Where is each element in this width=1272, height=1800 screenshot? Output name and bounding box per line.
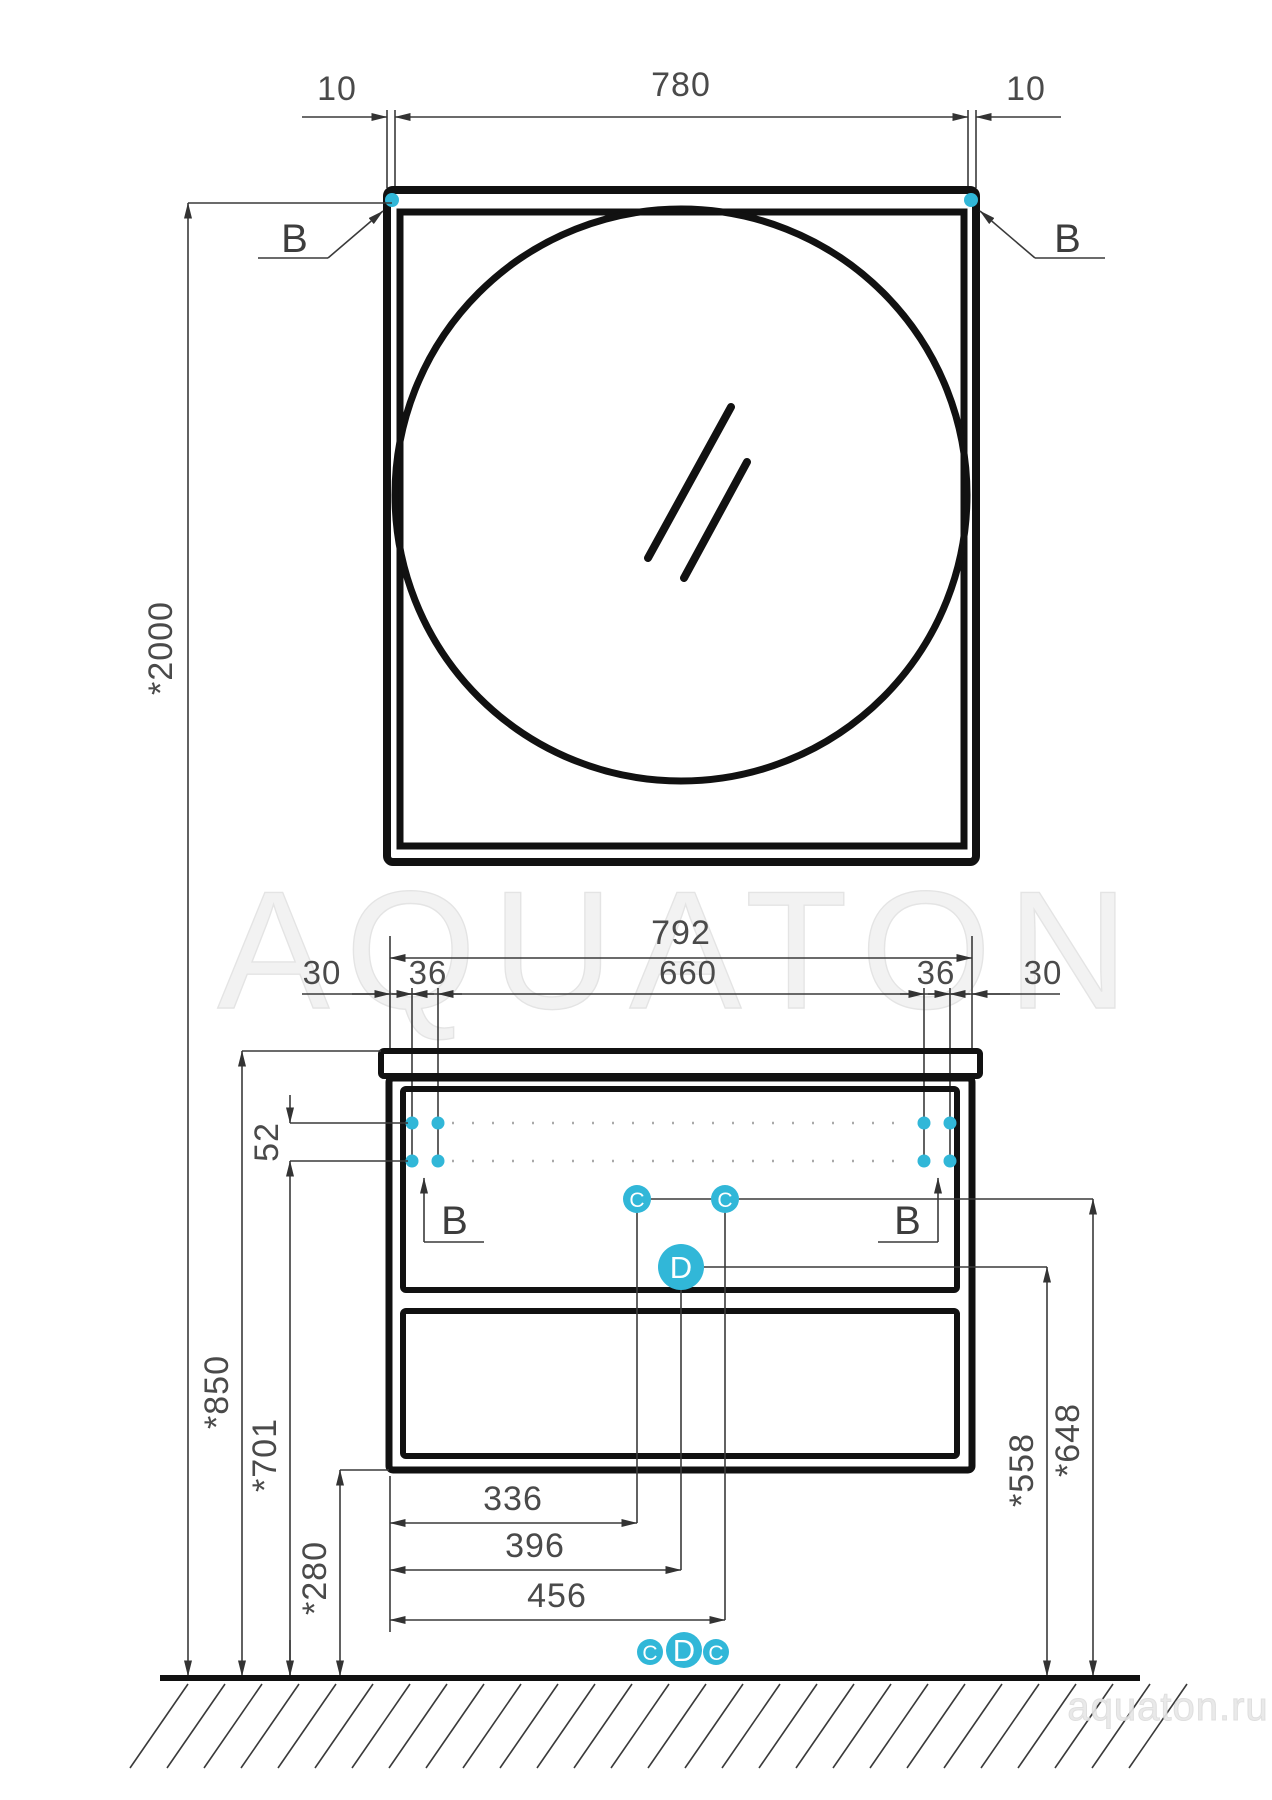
dim-10-left: 10: [317, 70, 357, 108]
dim-bottom-height: *280: [296, 1470, 389, 1676]
dim-36-right: 36: [917, 954, 956, 991]
dim-10-right: 10: [1006, 70, 1046, 108]
dim-396: 396: [505, 1527, 565, 1565]
screw-point: [944, 1155, 957, 1168]
dim-2000: *2000: [142, 601, 180, 695]
dim-36-left: 36: [409, 954, 448, 991]
mount-point-right: [964, 193, 978, 207]
d-badge-letter: D: [673, 1633, 695, 1668]
mirror-outer-frame: [387, 190, 976, 862]
leader-arrow: [980, 211, 1035, 258]
b-label: B: [441, 1199, 469, 1243]
dim-30-left: 30: [303, 954, 342, 991]
worktop-slab: [381, 1051, 980, 1076]
screw-point: [918, 1117, 931, 1130]
dim-660: 660: [659, 954, 717, 991]
mirror-b-callout-left: B: [258, 211, 383, 261]
cabinet-b-callout-right: B: [878, 1178, 938, 1243]
floor-drain-badges: C D C: [637, 1632, 729, 1668]
dim-screw-spacing: 52: [248, 1095, 408, 1190]
c-badge-letter: C: [629, 1189, 644, 1212]
dim-336: 336: [483, 1480, 543, 1518]
dim-screw-height: *701: [246, 1190, 290, 1676]
mirror-inner-frame: [400, 212, 964, 846]
dim-52: 52: [248, 1122, 286, 1162]
glass-reflection-mark: [648, 407, 731, 558]
b-label: B: [281, 217, 309, 261]
mount-point-left: [385, 193, 399, 207]
technical-drawing-canvas: AQUATON 10 780 10 B B *2000: [0, 0, 1272, 1800]
c-badge-letter: C: [642, 1642, 657, 1665]
dim-792: 792: [651, 914, 711, 952]
ground: aquaton.ru: [130, 1678, 1269, 1768]
dim-850: *850: [198, 1355, 236, 1429]
dim-280: *280: [296, 1541, 334, 1615]
drawing-svg: AQUATON 10 780 10 B B *2000: [0, 0, 1272, 1800]
ground-hatching: [130, 1684, 1187, 1768]
watermark-aquaton-ru: aquaton.ru: [1067, 1685, 1268, 1729]
dim-drain-offsets: 336 396 456: [390, 1476, 725, 1632]
dim-648: *648: [1049, 1403, 1087, 1477]
cabinet-b-callout-left: B: [424, 1178, 484, 1243]
c-badge-letter: C: [717, 1189, 732, 1212]
screw-point: [944, 1117, 957, 1130]
b-label: B: [894, 1199, 922, 1243]
lower-drawer-front: [403, 1311, 957, 1456]
leader-arrow: [328, 211, 383, 258]
d-badge-letter: D: [670, 1250, 692, 1285]
dim-558: *558: [1003, 1433, 1041, 1507]
b-label: B: [1054, 217, 1082, 261]
screw-point: [918, 1155, 931, 1168]
c-badge-letter: C: [708, 1642, 723, 1665]
screw-point: [432, 1155, 445, 1168]
dim-outlet-heights: *558 *648: [1003, 1199, 1093, 1676]
mirror-b-callout-right: B: [980, 211, 1105, 261]
screw-point: [432, 1117, 445, 1130]
drain-references: C C D: [623, 1185, 1093, 1620]
dim-456: 456: [527, 1577, 587, 1615]
mirror-front-view: [385, 190, 978, 862]
dim-701: *701: [246, 1418, 284, 1492]
dim-30-right: 30: [1024, 954, 1063, 991]
mirror-top-dimension: 10 780 10: [302, 66, 1061, 188]
dim-780: 780: [651, 66, 711, 104]
